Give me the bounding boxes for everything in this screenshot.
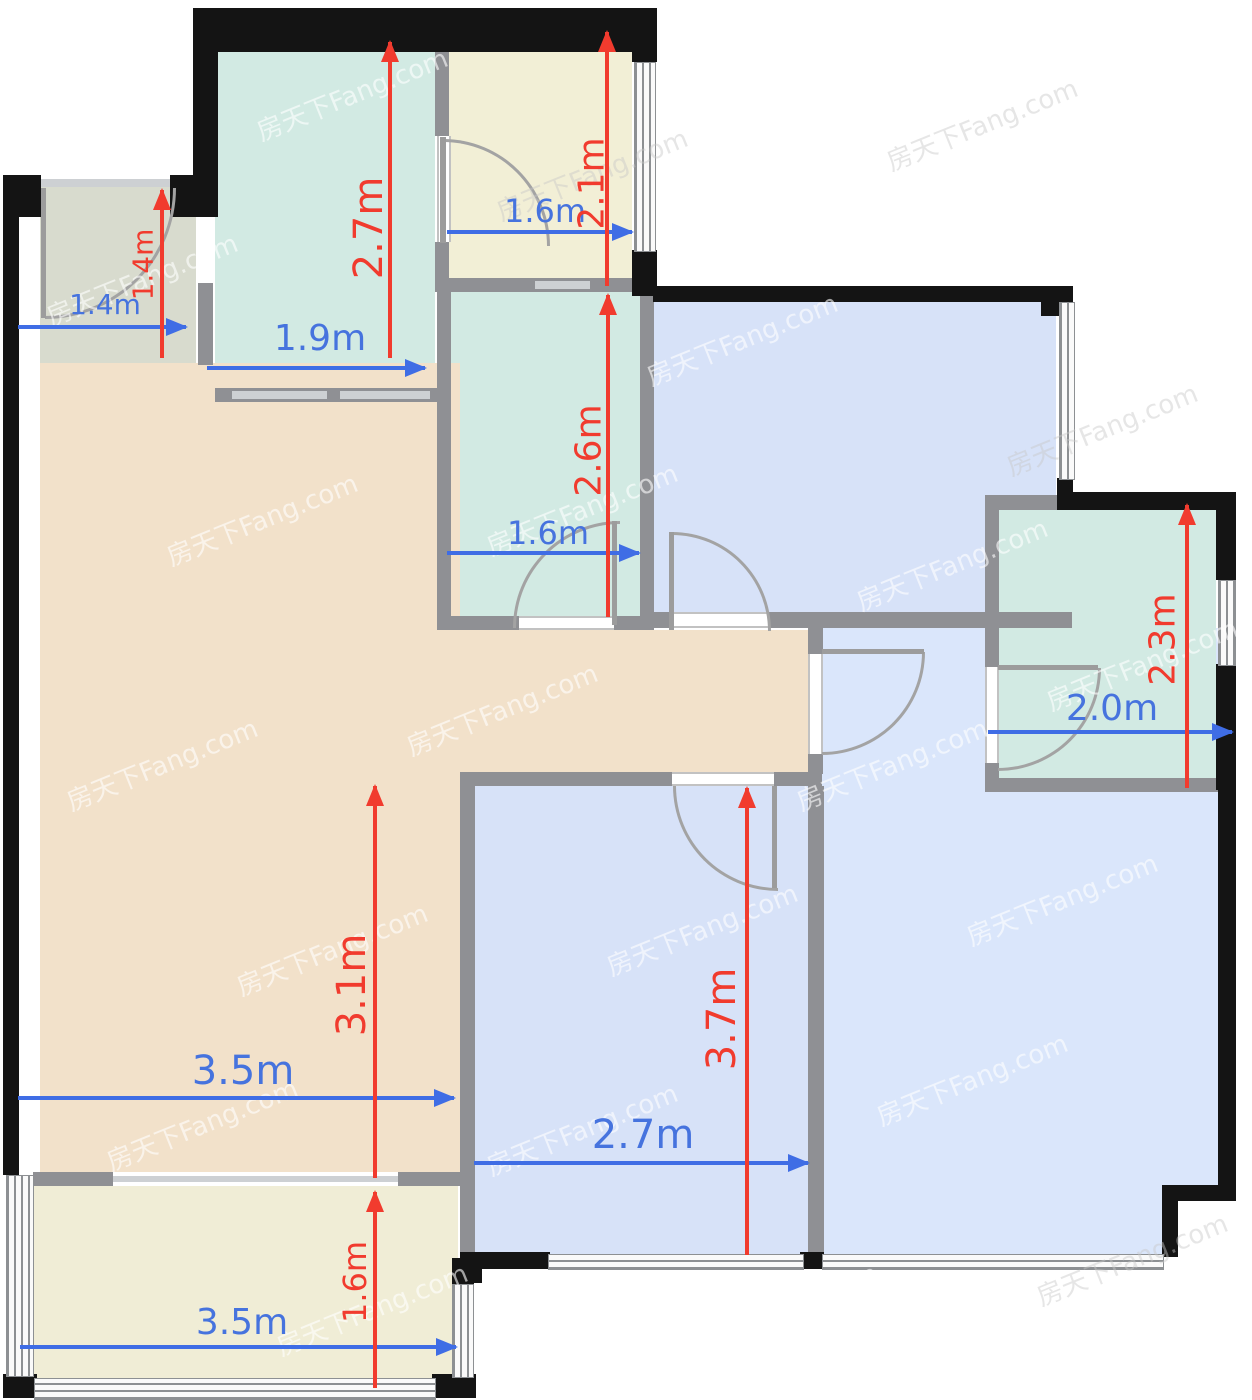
wall-corridor-bottom-right xyxy=(774,772,822,786)
dim-label-bottom-bed-depth: 3.7m xyxy=(699,949,745,1089)
dim-label-balcony-width: 3.5m xyxy=(172,1302,312,1343)
dim-arrow-bottom-bed-depth xyxy=(745,788,749,1255)
wall-bath-right-left-lower xyxy=(985,763,999,778)
wall-living-balcony-left xyxy=(33,1172,113,1186)
floor-plan: 1.4m 1.9m 1.6m 1.6m 2.0m 3.5m 2.7m 3.5m … xyxy=(0,0,1252,1400)
dim-label-living-depth: 3.1m xyxy=(329,915,375,1055)
dim-label-top-room-depth: 2.1m xyxy=(572,114,613,254)
wall-bedroom-tr-bottom-right xyxy=(769,612,1072,628)
wall-bath-right-upper xyxy=(1216,492,1236,580)
window-kitchen-bottom-pass-2 xyxy=(340,391,430,399)
dim-arrow-entry-depth xyxy=(160,190,164,358)
wall-living-balcony-right xyxy=(398,1172,462,1186)
window-cream-right xyxy=(634,62,656,252)
wall-bath-right-top-gray xyxy=(985,495,1059,510)
room-bedroom-right-lower xyxy=(822,1185,1162,1256)
watermark: 房天下Fang.com xyxy=(880,68,1082,178)
wall-bedrooms-divider xyxy=(808,786,824,1254)
dim-label-right-bath-depth: 2.3m xyxy=(1143,570,1184,710)
wall-bath-middle-right xyxy=(640,290,654,618)
door-leaf-cream-room xyxy=(440,137,446,243)
door-leaf-bath-right xyxy=(998,665,1098,670)
wall-corridor-right-upper xyxy=(808,628,823,654)
dim-label-kitchen-width: 1.9m xyxy=(250,318,390,359)
dim-arrow-right-bath-depth xyxy=(1185,505,1189,788)
wall-bedroom-bottom-left xyxy=(460,786,475,1252)
window-cream-bottom-pass xyxy=(535,281,590,289)
wall-notch-vertical xyxy=(1162,1185,1178,1257)
wall-bath-middle-bottom-right xyxy=(614,616,654,630)
dim-label-entry-depth: 1.4m xyxy=(127,195,160,335)
window-bedroom-right-bottom xyxy=(822,1254,1164,1270)
dim-arrow-kitchen-width xyxy=(207,366,425,370)
wall-entry-top-right xyxy=(170,175,218,217)
wall-cream-right-upper-block xyxy=(632,44,657,62)
dim-arrow-living-width xyxy=(18,1096,454,1100)
wall-kitchen-cream-divider-upper xyxy=(435,50,449,136)
dim-label-mid-bath-depth: 2.6m xyxy=(569,381,610,521)
wall-bedroom-tr-top xyxy=(653,286,1057,302)
dim-arrow-right-bath-width xyxy=(988,730,1232,734)
door-leaf-bedroom-bottom xyxy=(772,786,777,888)
wall-corridor-bottom-left xyxy=(460,772,672,786)
wall-bath-right-bottom xyxy=(985,778,1219,792)
wall-bath-middle-bottom-left xyxy=(437,616,519,630)
dim-arrow-bottom-bed-width xyxy=(474,1161,808,1165)
room-balcony xyxy=(20,1186,458,1380)
wall-right-outer xyxy=(1218,790,1236,1190)
dim-label-living-width: 3.5m xyxy=(173,1048,313,1094)
wall-bath-right-left-upper xyxy=(985,495,999,667)
wall-entry-kitchen-divider xyxy=(198,283,213,365)
wall-bath-middle-left xyxy=(437,290,451,630)
sill-entry-door xyxy=(41,179,170,187)
window-bedroom-tr-right xyxy=(1059,302,1075,480)
opening-bedroom-bottom-door xyxy=(672,772,774,786)
wall-balcony-bottom-left-block xyxy=(3,1374,37,1398)
dim-label-kitchen-depth: 2.7m xyxy=(346,158,392,298)
opening-bedroom-right-door xyxy=(808,654,823,754)
wall-top xyxy=(193,8,657,52)
opening-living-balcony xyxy=(113,1176,398,1182)
door-leaf-bedroom-top-right xyxy=(669,532,674,630)
wall-balcony-top-right-block xyxy=(452,1258,474,1284)
dim-arrow-balcony-width xyxy=(20,1345,456,1349)
dim-label-balcony-depth: 1.6m xyxy=(336,1212,374,1352)
wall-kitchen-left xyxy=(193,8,218,182)
wall-left-outer xyxy=(3,175,19,1175)
opening-bath-right-door xyxy=(985,667,999,763)
dim-label-bottom-bed-width: 2.7m xyxy=(573,1112,713,1158)
window-kitchen-bottom-pass-1 xyxy=(232,391,327,399)
wall-corridor-right-lower xyxy=(808,754,823,774)
door-leaf-bedroom-right xyxy=(822,649,924,654)
hallway-corridor xyxy=(437,630,808,772)
window-bath-right xyxy=(1218,580,1236,666)
window-balcony-right xyxy=(452,1284,474,1378)
window-bedroom-bottom xyxy=(548,1254,804,1270)
